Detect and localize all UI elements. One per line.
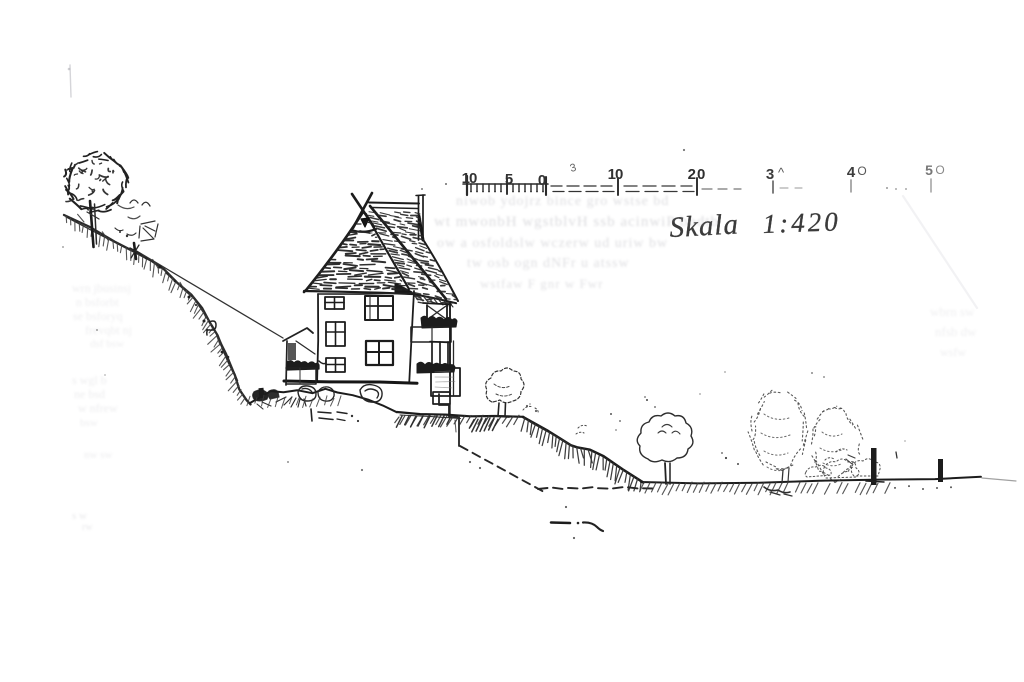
svg-text:wrn jbusinsj: wrn jbusinsj [72, 281, 131, 295]
svg-text:wt mwonbH wgstblvH ssb acinwiP: wt mwonbH wgstblvH ssb acinwiP bodtb [434, 214, 719, 230]
svg-text:frevqbt nj: frevqbt nj [85, 323, 132, 337]
svg-text:rw: rw [82, 522, 93, 533]
svg-text:10: 10 [608, 166, 623, 183]
svg-text:w nfrew: w nfrew [78, 401, 118, 415]
svg-text:s w: s w [72, 510, 87, 522]
svg-text:se bsforyq: se bsforyq [73, 309, 123, 323]
svg-text:n bsforbt: n bsforbt [76, 295, 120, 309]
svg-text:dsf bsw: dsf bsw [90, 338, 124, 350]
svg-text:ne bsd: ne bsd [74, 387, 105, 401]
svg-text:wbrn sw: wbrn sw [930, 304, 975, 319]
svg-text:ow a osfoldslw wczerw ud uriw: ow a osfoldslw wczerw ud uriw bw [437, 236, 668, 251]
svg-text:1:420: 1:420 [762, 206, 841, 239]
svg-text:5: 5 [925, 162, 933, 178]
svg-text:niwob ydojrz bince gro wstse b: niwob ydojrz bince gro wstse bd [456, 194, 669, 209]
svg-text:s wgl b: s wgl b [72, 373, 107, 387]
svg-text:^: ^ [778, 165, 785, 180]
svg-text:5: 5 [505, 171, 513, 188]
svg-text:tw osb ogn dNFr u atssw: tw osb ogn dNFr u atssw [467, 256, 630, 271]
svg-text:O: O [857, 164, 866, 178]
svg-text:nfsb dw: nfsb dw [935, 324, 977, 339]
svg-text:nw sw: nw sw [84, 449, 112, 461]
svg-text:3: 3 [766, 166, 774, 183]
svg-text:wsfw: wsfw [940, 345, 966, 359]
svg-text:10: 10 [462, 170, 477, 187]
svg-text:O: O [935, 163, 944, 177]
svg-text:20: 20 [688, 166, 707, 183]
svg-text:0: 0 [538, 172, 546, 189]
svg-text:bsw: bsw [80, 417, 98, 429]
svg-text:wstfaw F gnr w Fwr: wstfaw F gnr w Fwr [480, 276, 603, 291]
svg-text:4: 4 [847, 164, 856, 181]
